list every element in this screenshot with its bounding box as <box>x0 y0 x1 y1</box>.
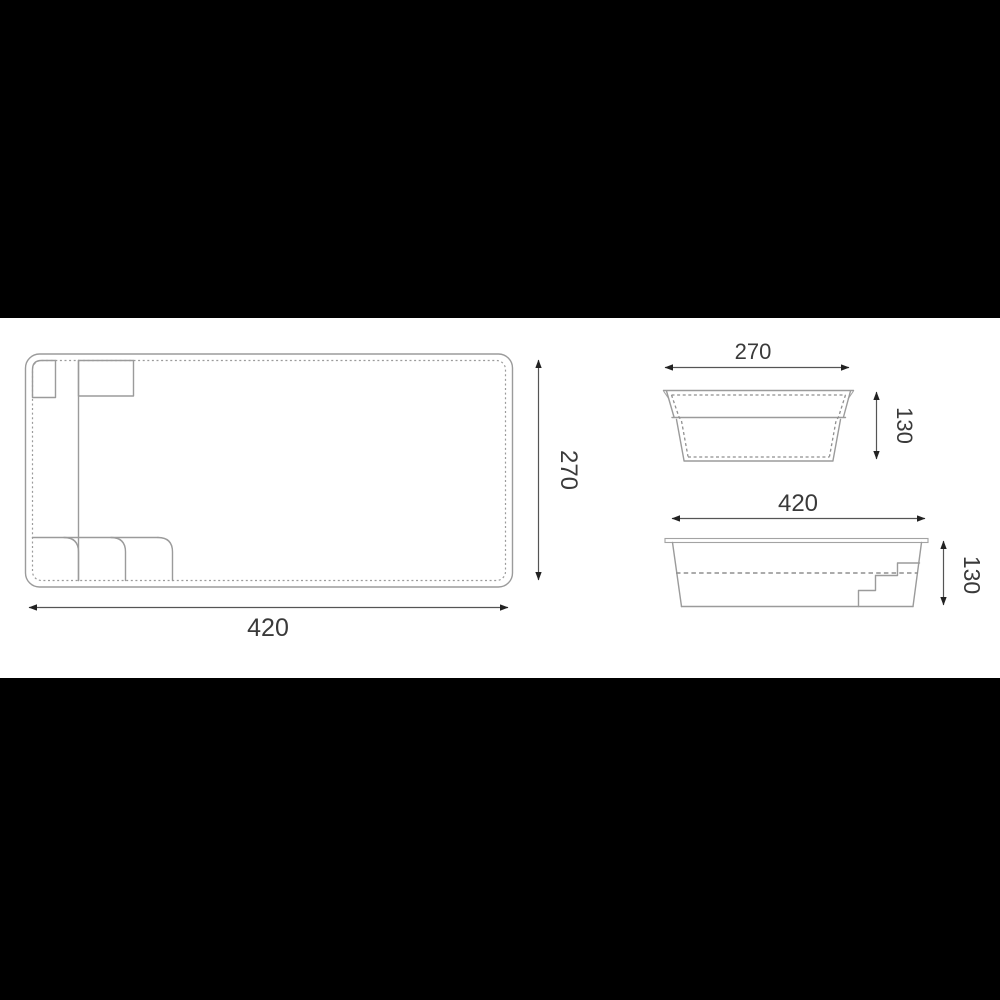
letterboxed-image: 420 270 270 <box>0 0 1000 1000</box>
side-section-view: 420 130 <box>665 490 985 607</box>
side-depth-label: 130 <box>959 556 985 594</box>
side-rim <box>665 539 928 543</box>
plan-view: 420 270 <box>26 354 583 642</box>
pool-outline <box>26 354 513 587</box>
pool-inner-edge-dashed <box>33 361 506 581</box>
end-upper-wall-right <box>844 391 851 417</box>
plan-height-label: 270 <box>555 450 582 490</box>
end-lower-wall-left <box>677 420 685 461</box>
pool-technical-drawing: 420 270 270 <box>0 318 1000 678</box>
letterbox-top <box>0 0 1000 318</box>
corner-seat <box>33 361 56 398</box>
side-length-label: 420 <box>778 490 818 517</box>
side-wall-left <box>673 543 682 607</box>
side-steps <box>859 563 920 607</box>
step-1 <box>64 538 79 581</box>
end-width-label: 270 <box>735 339 772 364</box>
plan-width-label: 420 <box>247 614 289 642</box>
side-wall-right <box>913 543 922 607</box>
step-2 <box>111 538 126 581</box>
end-lower-wall-right <box>833 420 841 461</box>
top-bench <box>79 361 134 397</box>
end-inner-shell-dashed <box>672 395 846 457</box>
step-3 <box>158 538 173 581</box>
end-depth-label: 130 <box>892 407 917 444</box>
drawing-canvas: 420 270 270 <box>0 318 1000 678</box>
end-section-view: 270 130 <box>664 339 918 461</box>
letterbox-bottom <box>0 678 1000 1000</box>
